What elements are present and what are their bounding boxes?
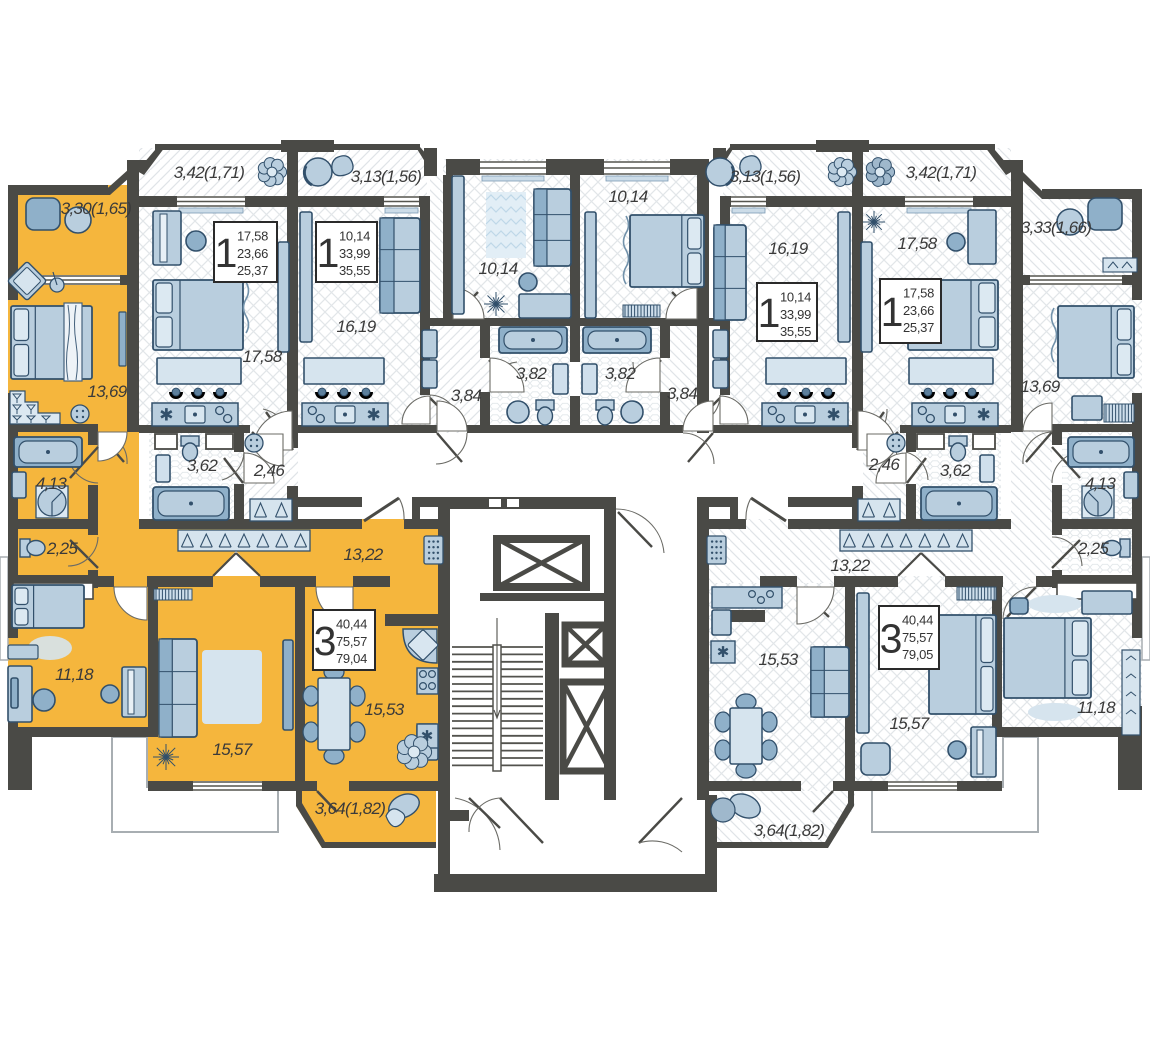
svg-text:10,14: 10,14 xyxy=(478,259,517,278)
svg-text:33,99: 33,99 xyxy=(780,307,811,322)
svg-text:1: 1 xyxy=(215,230,238,276)
svg-text:15,53: 15,53 xyxy=(364,700,404,719)
svg-text:25,37: 25,37 xyxy=(903,320,934,335)
svg-text:40,44: 40,44 xyxy=(902,613,933,628)
svg-text:3,30(1,65): 3,30(1,65) xyxy=(61,199,132,218)
svg-text:4,13: 4,13 xyxy=(1085,474,1117,493)
svg-text:15,57: 15,57 xyxy=(889,714,929,733)
svg-text:10,14: 10,14 xyxy=(339,229,370,244)
svg-text:3,64(1,82): 3,64(1,82) xyxy=(754,821,825,840)
svg-text:4,13: 4,13 xyxy=(36,474,68,493)
svg-text:79,04: 79,04 xyxy=(336,651,367,666)
svg-text:✱: ✱ xyxy=(367,406,381,425)
svg-text:13,22: 13,22 xyxy=(830,556,870,575)
svg-text:75,57: 75,57 xyxy=(902,630,933,645)
svg-text:✱: ✱ xyxy=(827,406,841,425)
svg-text:79,05: 79,05 xyxy=(902,647,933,662)
svg-text:3,13(1,56): 3,13(1,56) xyxy=(730,167,801,186)
svg-text:40,44: 40,44 xyxy=(336,617,367,632)
svg-text:3,64(1,82): 3,64(1,82) xyxy=(315,799,386,818)
svg-text:23,66: 23,66 xyxy=(237,246,268,261)
svg-text:3,33(1,66): 3,33(1,66) xyxy=(1021,218,1092,237)
svg-text:17,58: 17,58 xyxy=(242,347,282,366)
svg-text:13,69: 13,69 xyxy=(1020,377,1060,396)
svg-text:✱: ✱ xyxy=(977,406,991,425)
svg-text:35,55: 35,55 xyxy=(780,324,811,339)
svg-text:3,42(1,71): 3,42(1,71) xyxy=(174,163,245,182)
svg-text:23,66: 23,66 xyxy=(903,303,934,318)
svg-text:17,58: 17,58 xyxy=(237,229,268,244)
svg-text:10,14: 10,14 xyxy=(780,290,811,305)
svg-text:3,82: 3,82 xyxy=(516,364,548,383)
svg-text:3,13(1,56): 3,13(1,56) xyxy=(351,167,422,186)
svg-text:15,53: 15,53 xyxy=(758,650,798,669)
svg-text:15,57: 15,57 xyxy=(212,740,252,759)
svg-text:17,58: 17,58 xyxy=(897,234,937,253)
svg-text:2,25: 2,25 xyxy=(1077,539,1110,558)
svg-text:11,18: 11,18 xyxy=(1077,698,1116,717)
svg-text:3: 3 xyxy=(314,618,337,664)
svg-text:1: 1 xyxy=(758,290,781,336)
svg-text:✱: ✱ xyxy=(717,644,730,661)
svg-text:11,18: 11,18 xyxy=(55,665,94,684)
svg-text:13,22: 13,22 xyxy=(343,545,383,564)
svg-text:35,55: 35,55 xyxy=(339,263,370,278)
svg-text:17,58: 17,58 xyxy=(903,286,934,301)
svg-text:2,46: 2,46 xyxy=(868,455,901,474)
svg-text:2,25: 2,25 xyxy=(46,539,79,558)
svg-text:3,42(1,71): 3,42(1,71) xyxy=(906,163,977,182)
svg-text:16,19: 16,19 xyxy=(336,317,376,336)
svg-text:3,82: 3,82 xyxy=(605,364,637,383)
svg-text:3,84: 3,84 xyxy=(667,384,698,403)
svg-text:3,62: 3,62 xyxy=(187,456,219,475)
svg-text:3,84: 3,84 xyxy=(451,386,482,405)
svg-text:✱: ✱ xyxy=(159,406,173,425)
svg-text:33,99: 33,99 xyxy=(339,246,370,261)
svg-text:13,69: 13,69 xyxy=(87,382,127,401)
svg-text:3,62: 3,62 xyxy=(940,461,972,480)
svg-text:3: 3 xyxy=(880,616,903,662)
svg-text:1: 1 xyxy=(881,289,904,335)
svg-text:2,46: 2,46 xyxy=(253,461,286,480)
svg-text:25,37: 25,37 xyxy=(237,263,268,278)
svg-text:10,14: 10,14 xyxy=(608,187,647,206)
svg-text:75,57: 75,57 xyxy=(336,634,367,649)
svg-text:1: 1 xyxy=(317,230,340,276)
svg-text:16,19: 16,19 xyxy=(768,239,808,258)
